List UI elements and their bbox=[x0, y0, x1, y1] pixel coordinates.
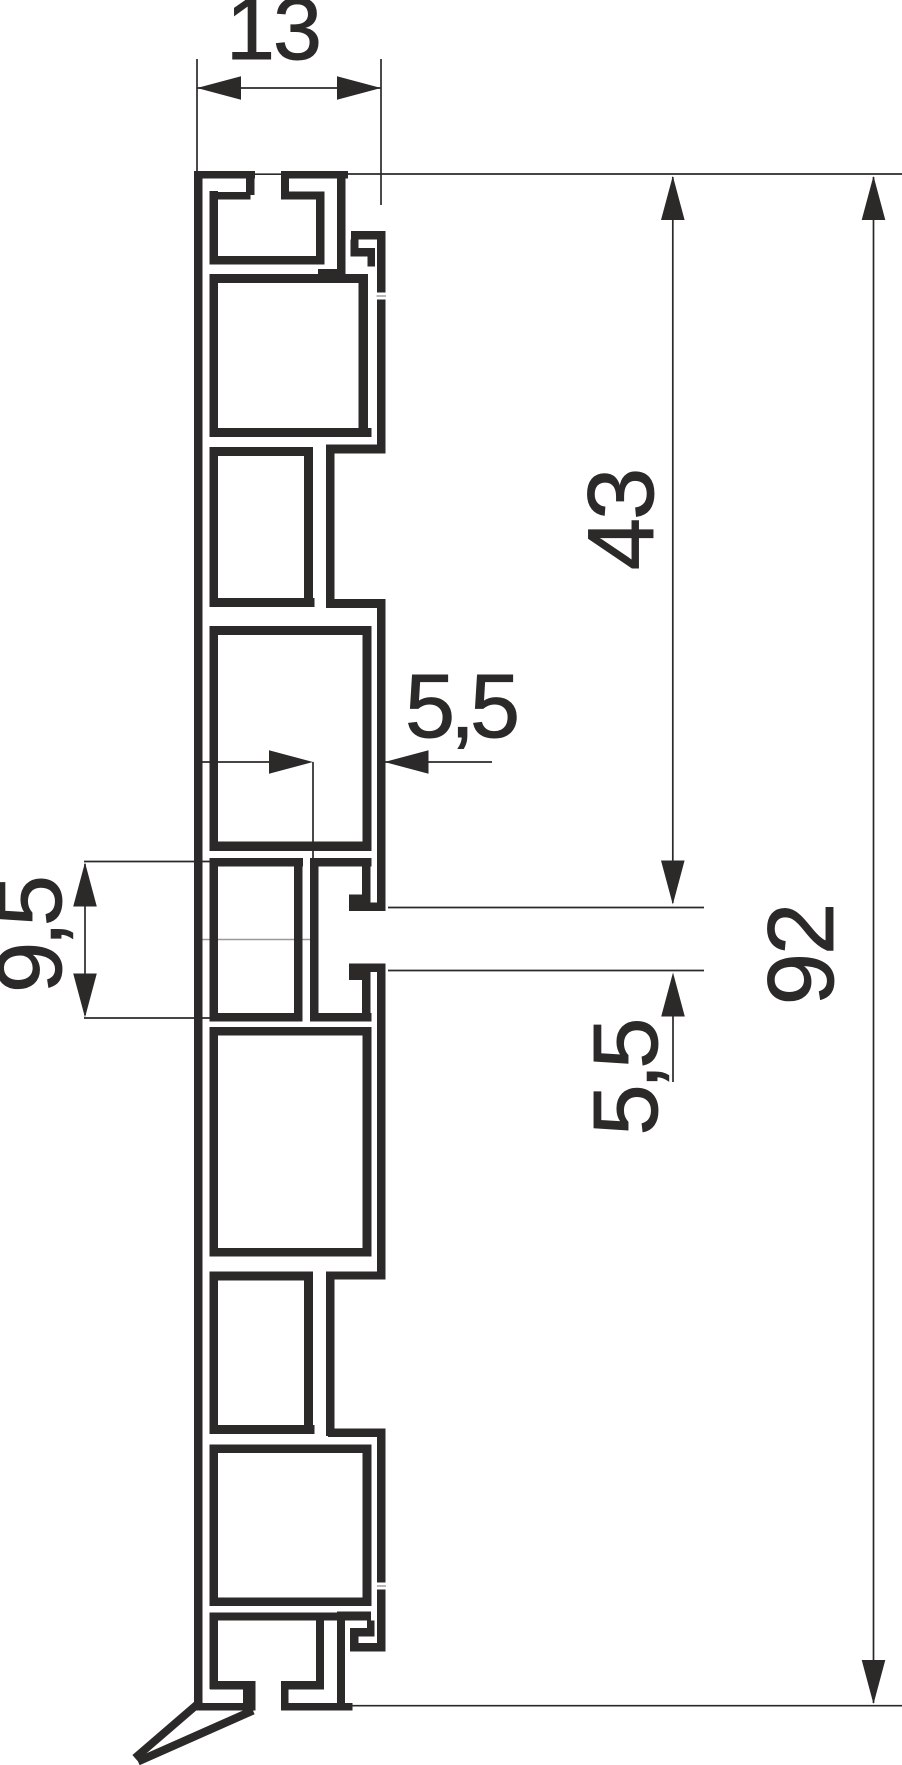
svg-text:5,5: 5,5 bbox=[405, 657, 517, 757]
svg-text:92: 92 bbox=[748, 905, 853, 1006]
svg-text:43: 43 bbox=[568, 470, 673, 571]
svg-text:5,5: 5,5 bbox=[575, 1021, 677, 1136]
svg-text:13: 13 bbox=[226, 0, 320, 78]
svg-text:9,5: 9,5 bbox=[0, 878, 81, 993]
